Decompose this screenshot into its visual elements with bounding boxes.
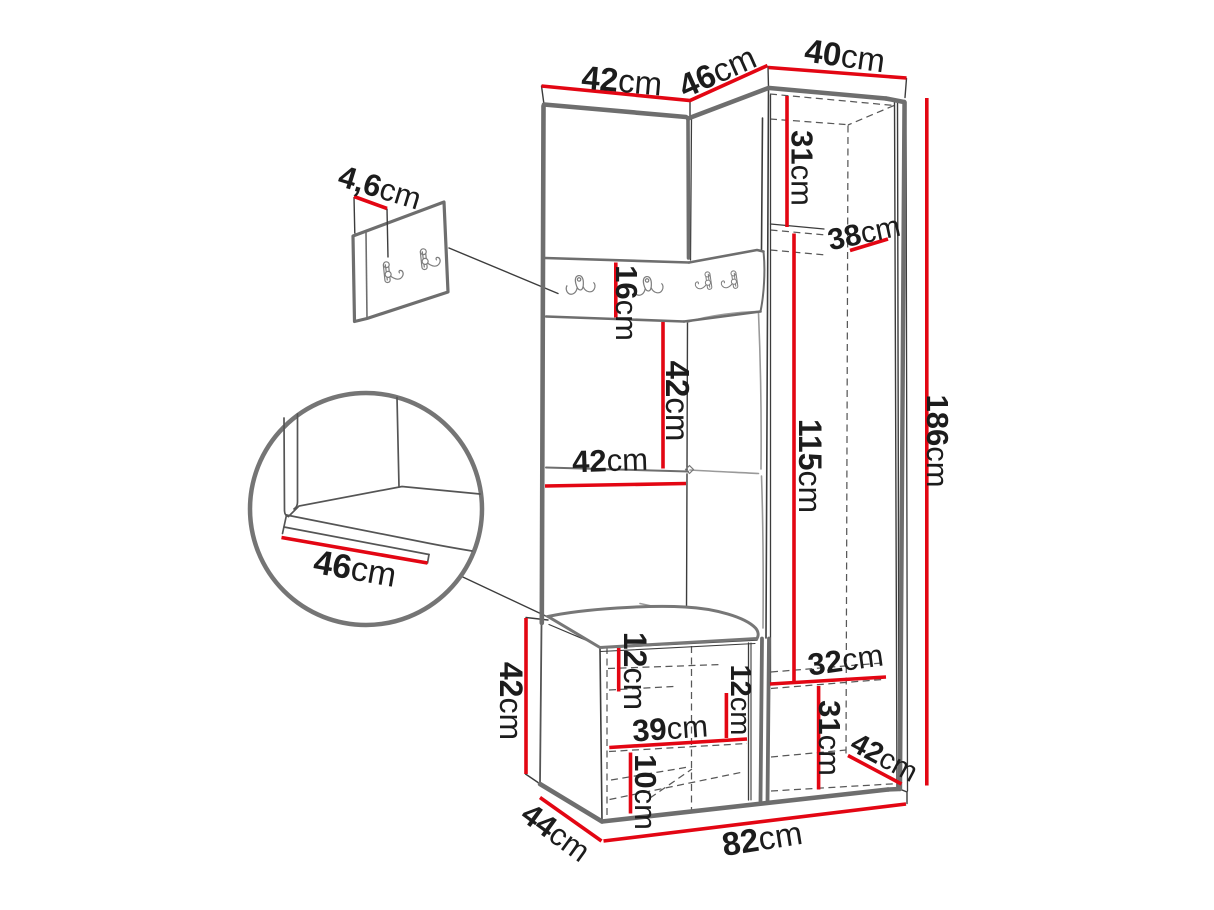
svg-text:42cm: 42cm <box>580 58 664 102</box>
svg-text:42cm: 42cm <box>493 662 529 740</box>
svg-text:115cm: 115cm <box>792 419 828 513</box>
svg-text:12cm: 12cm <box>724 665 756 736</box>
svg-text:42cm: 42cm <box>660 361 697 442</box>
svg-text:186cm: 186cm <box>921 394 956 487</box>
svg-text:31cm: 31cm <box>813 700 848 776</box>
svg-text:42cm: 42cm <box>572 441 649 479</box>
svg-text:10cm: 10cm <box>629 754 664 830</box>
svg-text:39cm: 39cm <box>631 708 709 748</box>
svg-text:16cm: 16cm <box>610 265 645 341</box>
svg-text:12cm: 12cm <box>617 632 653 710</box>
svg-text:31cm: 31cm <box>785 130 820 206</box>
